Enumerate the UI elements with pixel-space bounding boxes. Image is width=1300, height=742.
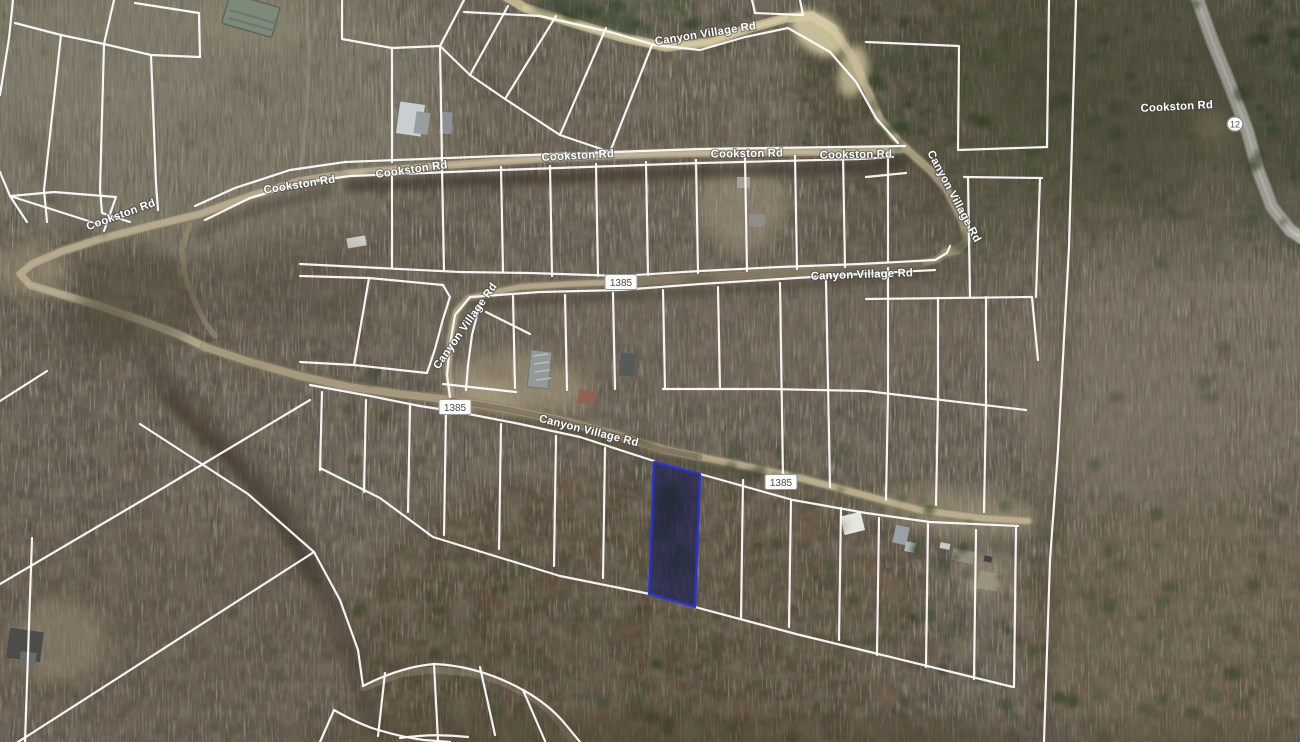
svg-text:Cookston Rd: Cookston Rd bbox=[820, 148, 893, 161]
svg-text:Cookston Rd: Cookston Rd bbox=[711, 147, 784, 160]
svg-text:12: 12 bbox=[1230, 120, 1240, 130]
svg-text:1385: 1385 bbox=[610, 278, 633, 289]
svg-text:1385: 1385 bbox=[770, 478, 793, 489]
svg-text:1385: 1385 bbox=[444, 403, 467, 414]
